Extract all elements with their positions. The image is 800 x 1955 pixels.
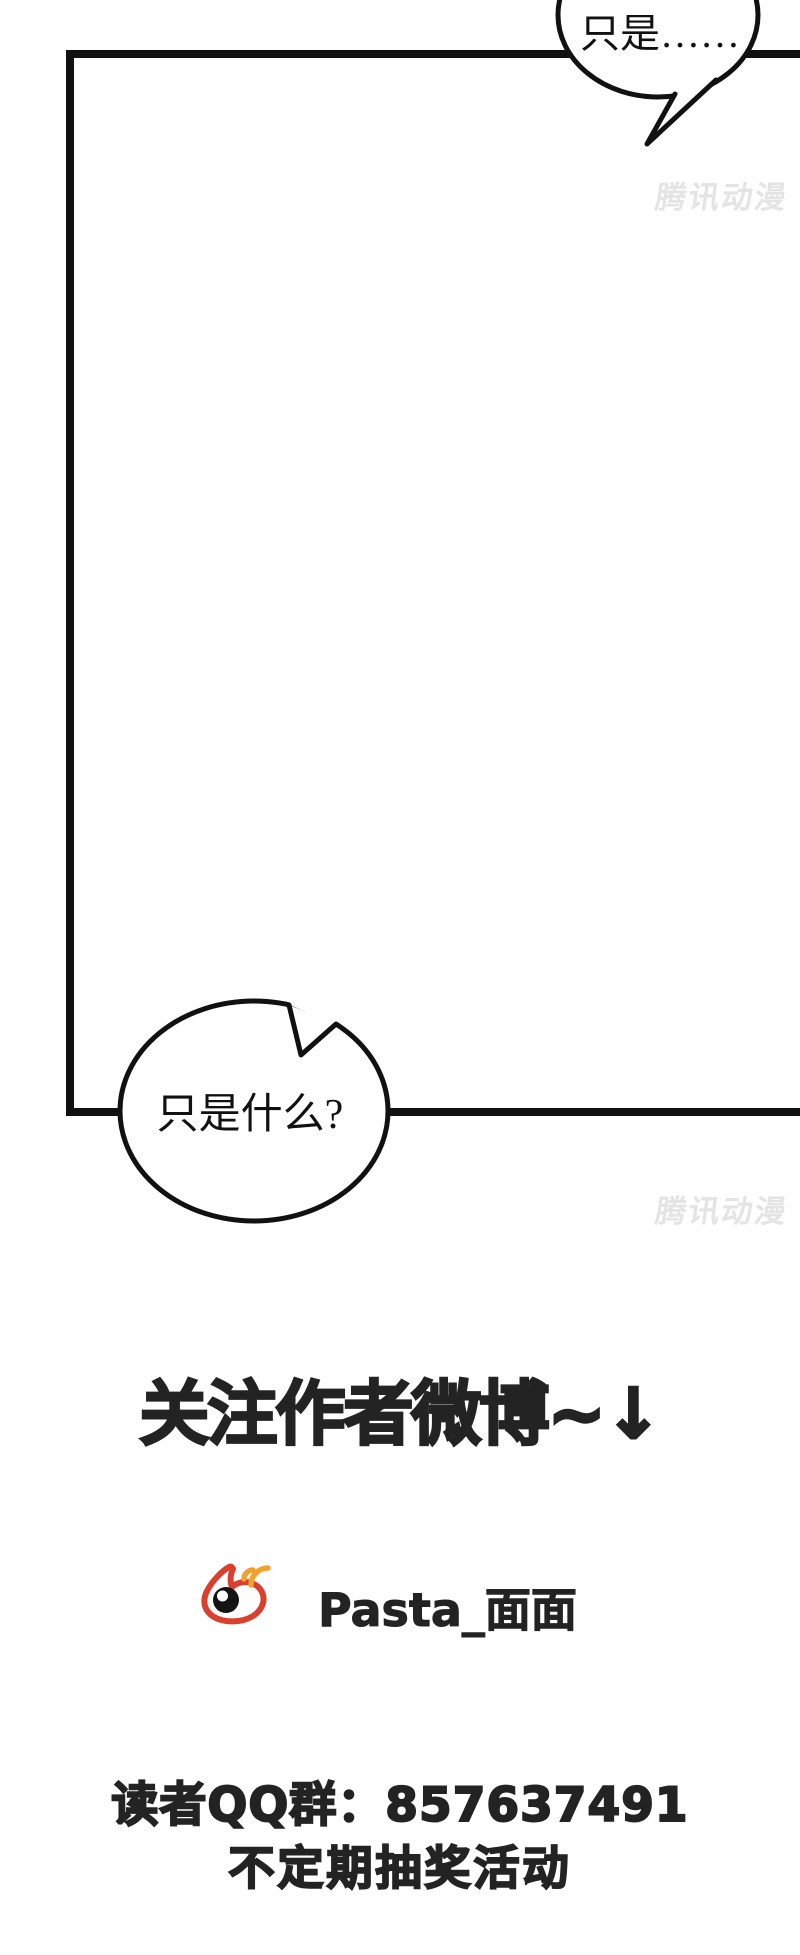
speech-bubble-bottom-text: 只是什么? (90, 1090, 410, 1140)
weibo-pupil-highlight (217, 1591, 228, 1602)
tencent-watermark-top: 腾讯动漫 (653, 172, 791, 217)
weibo-icon (196, 1554, 276, 1632)
qq-group-line: 读者QQ群：857637491 (0, 1766, 800, 1835)
panel-border-left (66, 50, 74, 1116)
speech-bubble-top-text: 只是…… (540, 10, 780, 58)
lottery-line: 不定期抽奖活动 (0, 1832, 800, 1898)
follow-author-heading: 关注作者微博~↓ (0, 1358, 800, 1459)
weibo-handle: Pasta_面面 (318, 1574, 577, 1640)
tencent-watermark-bottom: 腾讯动漫 (653, 1186, 791, 1231)
